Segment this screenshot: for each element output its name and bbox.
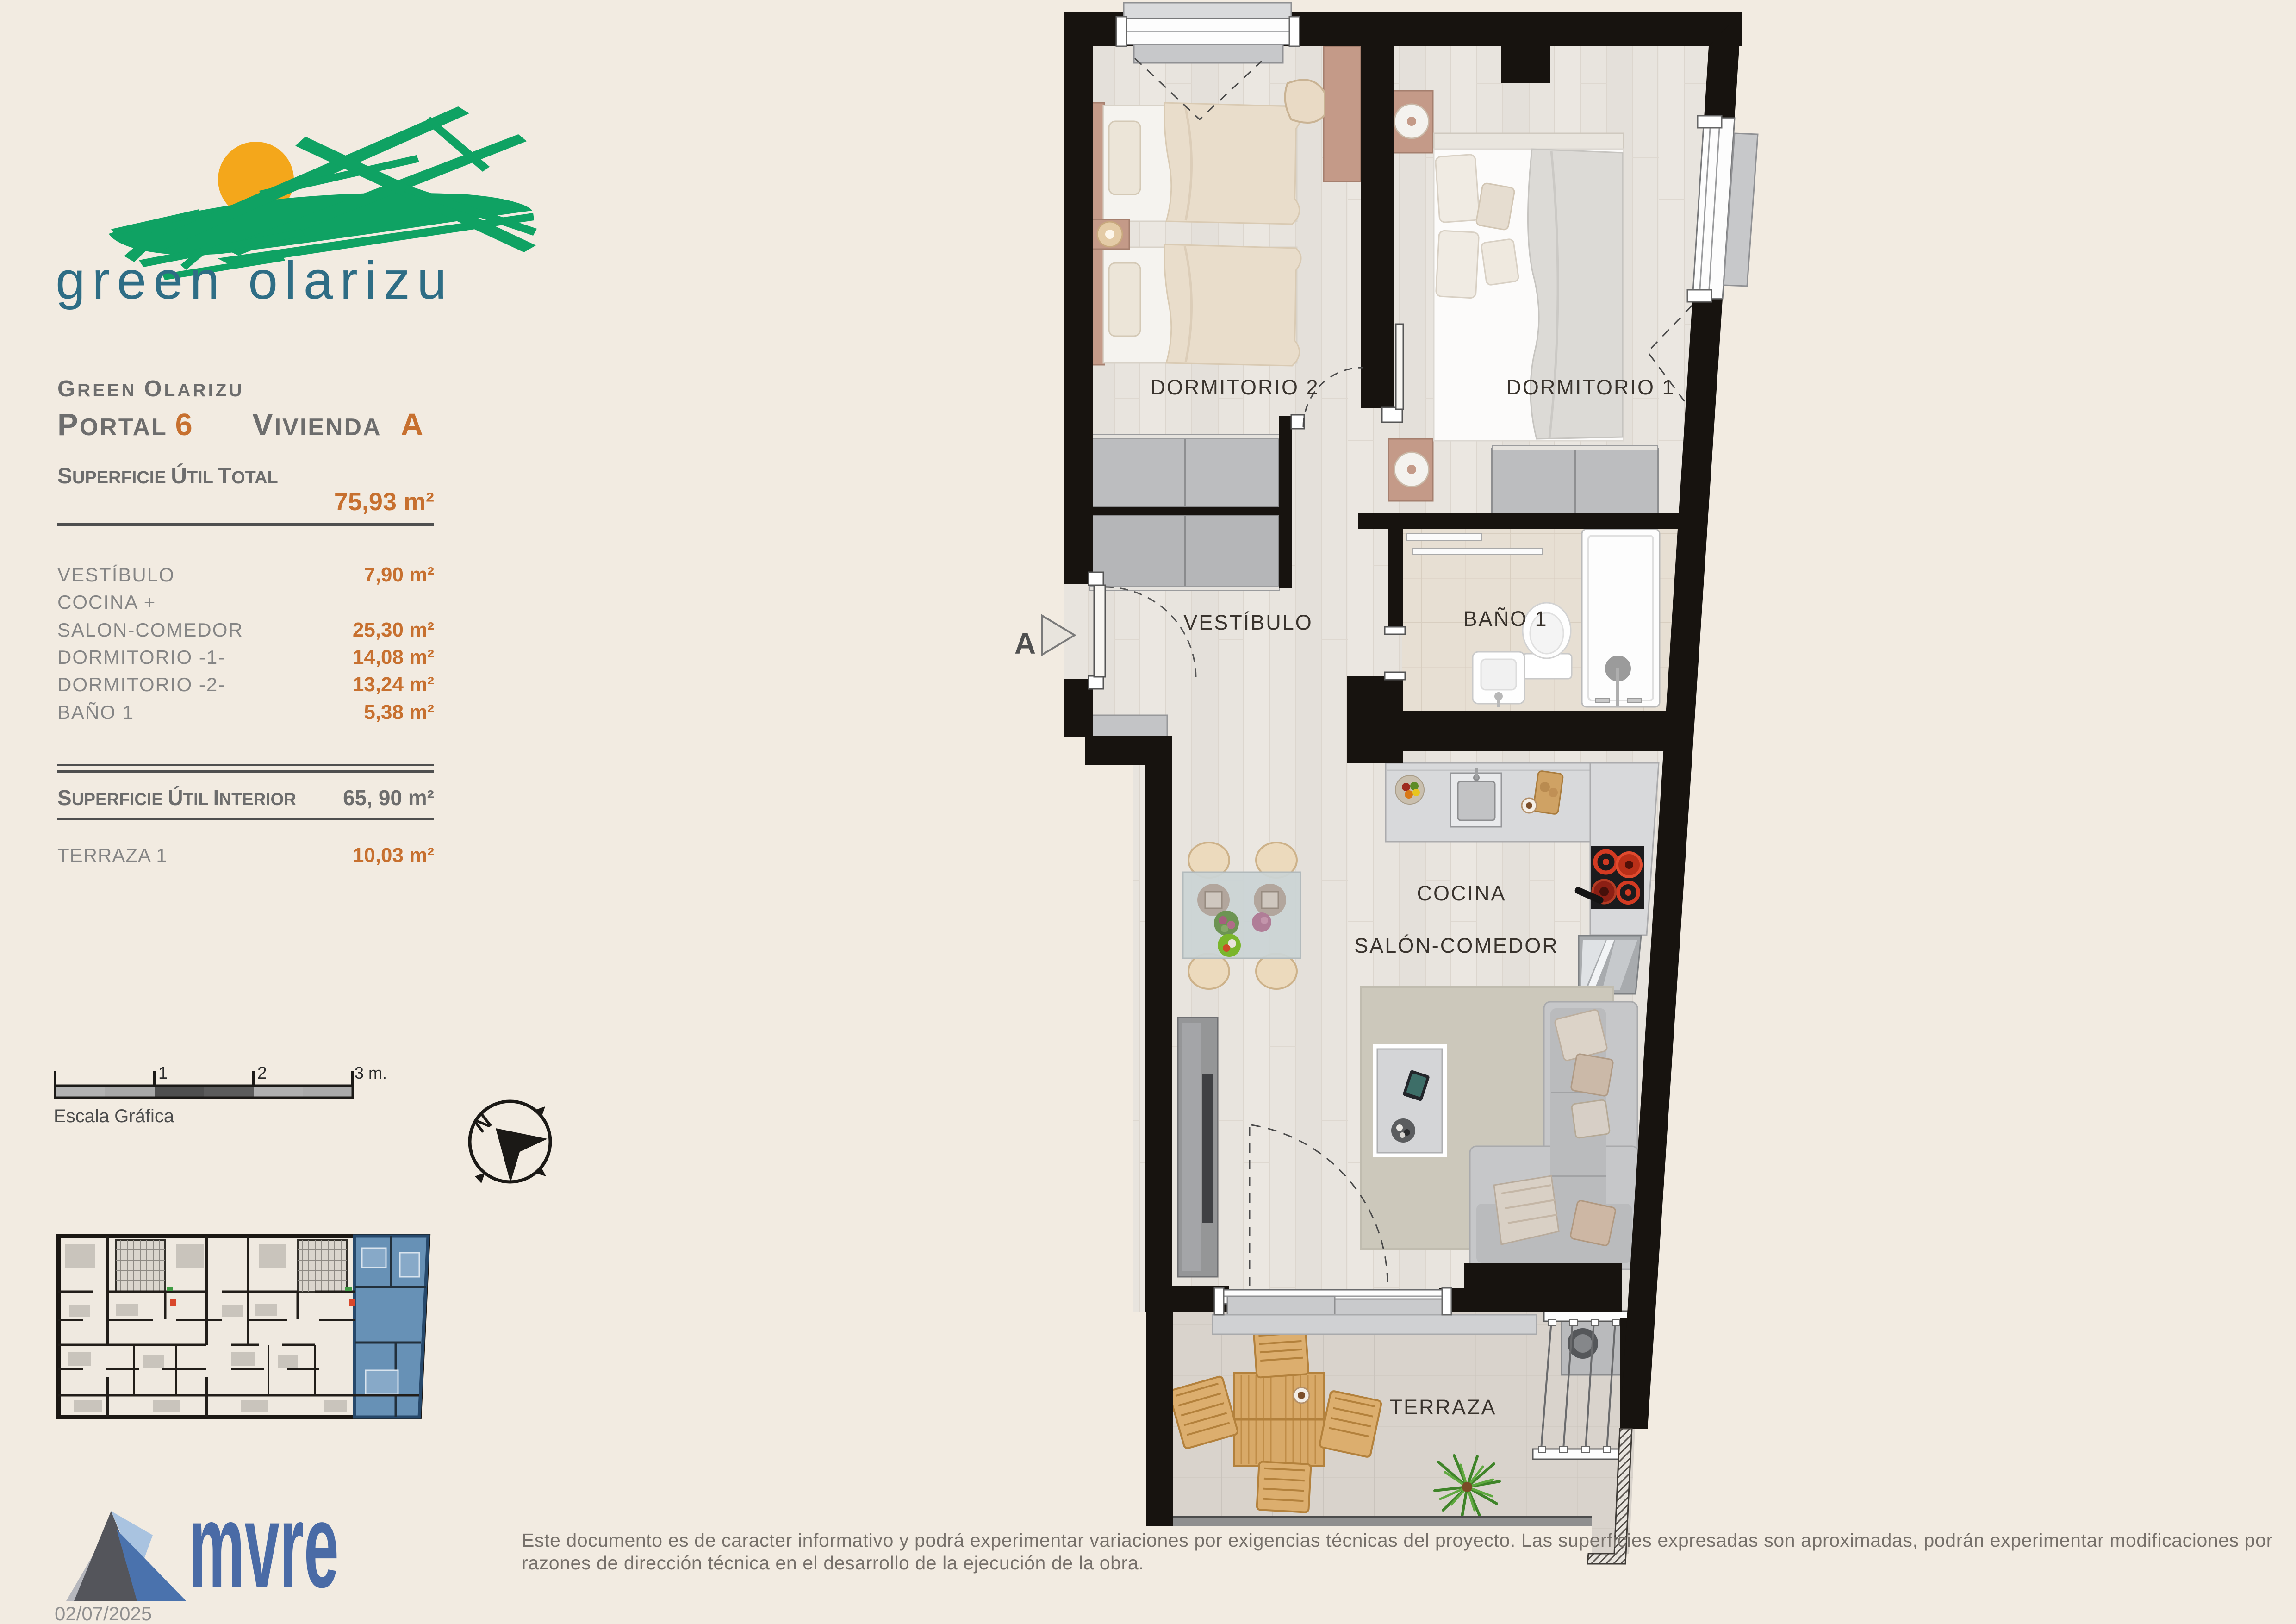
svg-text:SUPERFICIE ÚTIL INTERIOR: SUPERFICIE ÚTIL INTERIOR	[57, 786, 296, 810]
svg-text:25,30 m²: 25,30 m²	[353, 618, 434, 641]
svg-text:3 m.: 3 m.	[355, 1063, 387, 1082]
svg-text:Escala Gráfica: Escala Gráfica	[54, 1106, 174, 1126]
svg-text:DORMITORIO -2-: DORMITORIO -2-	[57, 674, 225, 695]
svg-text:COCINA +: COCINA +	[57, 591, 156, 613]
svg-text:VESTÍBULO: VESTÍBULO	[1183, 611, 1313, 634]
svg-text:TERRAZA 1: TERRAZA 1	[57, 844, 168, 866]
svg-text:PORTAL 6: PORTAL 6	[57, 407, 194, 442]
svg-text:10,03 m²: 10,03 m²	[353, 844, 434, 867]
svg-text:DORMITORIO 2: DORMITORIO 2	[1150, 375, 1319, 399]
svg-text:02/07/2025: 02/07/2025	[55, 1603, 152, 1624]
svg-text:BAÑO 1: BAÑO 1	[57, 701, 134, 723]
svg-text:SUPERFICIE ÚTIL TOTAL: SUPERFICIE ÚTIL TOTAL	[57, 463, 278, 488]
svg-text:BAÑO 1: BAÑO 1	[1463, 607, 1548, 631]
svg-text:mvre: mvre	[189, 1479, 339, 1613]
svg-text:N: N	[469, 1109, 496, 1137]
svg-text:Este documento es de caracter: Este documento es de caracter informativ…	[522, 1530, 2273, 1551]
svg-text:7,90 m²: 7,90 m²	[364, 563, 434, 586]
svg-text:razones de dirección técnica e: razones de dirección técnica en el desar…	[522, 1552, 1144, 1574]
svg-text:2: 2	[257, 1063, 267, 1082]
svg-text:5,38 m²: 5,38 m²	[364, 701, 434, 724]
svg-text:A: A	[1014, 627, 1036, 660]
svg-text:GREEN OLARIZU: GREEN OLARIZU	[57, 376, 244, 401]
svg-text:VESTÍBULO: VESTÍBULO	[57, 564, 175, 586]
svg-text:SALON-COMEDOR: SALON-COMEDOR	[57, 619, 243, 641]
svg-text:1: 1	[158, 1063, 168, 1082]
svg-text:DORMITORIO 1: DORMITORIO 1	[1506, 375, 1675, 399]
svg-text:13,24 m²: 13,24 m²	[353, 673, 434, 696]
svg-text:COCINA: COCINA	[1417, 881, 1506, 905]
svg-text:14,08 m²: 14,08 m²	[353, 646, 434, 668]
svg-text:75,93 m²: 75,93 m²	[334, 488, 434, 516]
svg-text:SALÓN-COMEDOR: SALÓN-COMEDOR	[1354, 934, 1559, 957]
svg-text:green olarizu: green olarizu	[56, 251, 454, 310]
svg-text:DORMITORIO -1-: DORMITORIO -1-	[57, 646, 225, 668]
svg-text:VIVIENDA A: VIVIENDA A	[252, 407, 424, 442]
svg-text:TERRAZA: TERRAZA	[1389, 1395, 1496, 1419]
svg-text:65, 90 m²: 65, 90 m²	[343, 786, 434, 810]
